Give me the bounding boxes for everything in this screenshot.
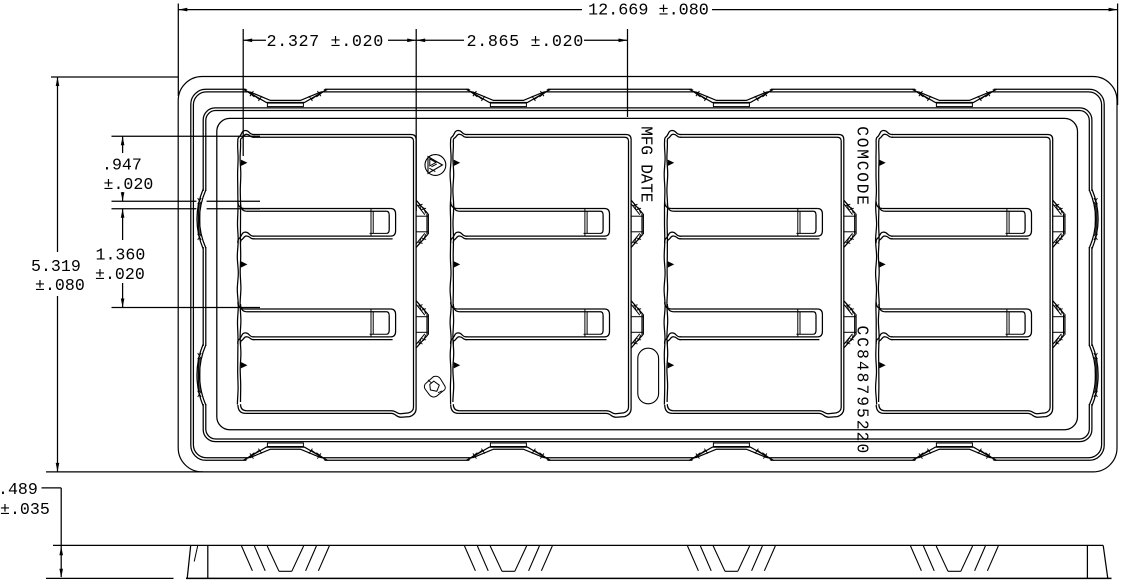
- svg-text:.947: .947: [102, 156, 142, 175]
- svg-text:±.035: ±.035: [0, 500, 50, 519]
- svg-text:.489: .489: [0, 480, 38, 499]
- svg-text:±.080: ±.080: [35, 276, 85, 295]
- svg-text:12.669 ±.080: 12.669 ±.080: [588, 2, 709, 21]
- svg-text:2.327 ±.020: 2.327 ±.020: [267, 33, 384, 52]
- svg-text:CC848795220: CC848795220: [852, 326, 870, 456]
- svg-text:5.319: 5.319: [31, 257, 81, 276]
- svg-text:COMCODE: COMCODE: [852, 126, 870, 206]
- svg-text:±.020: ±.020: [104, 175, 154, 194]
- svg-text:2.865 ±.020: 2.865 ±.020: [467, 33, 584, 52]
- svg-text:1.360: 1.360: [96, 246, 146, 265]
- svg-text:±.020: ±.020: [95, 265, 145, 284]
- svg-text:MFG DATE: MFG DATE: [636, 126, 654, 202]
